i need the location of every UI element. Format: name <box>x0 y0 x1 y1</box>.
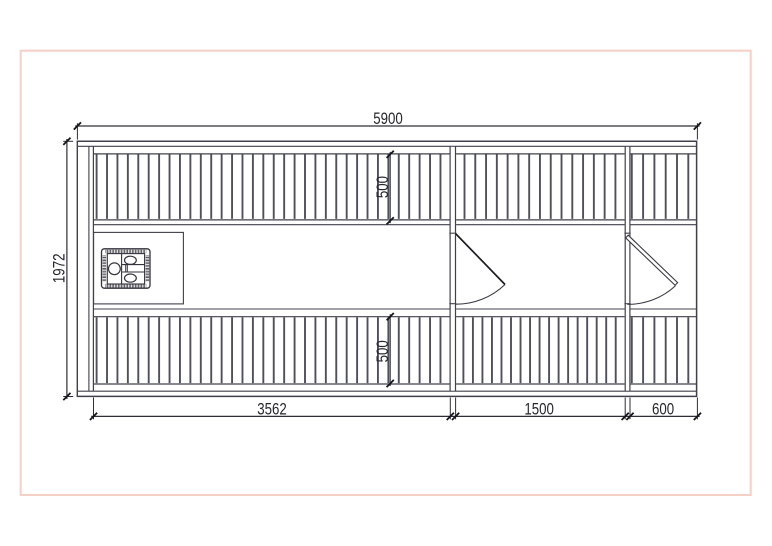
svg-text:500: 500 <box>375 176 392 198</box>
svg-text:3562: 3562 <box>257 401 287 418</box>
svg-text:600: 600 <box>652 401 674 418</box>
svg-text:1500: 1500 <box>524 401 554 418</box>
svg-text:5900: 5900 <box>373 111 403 128</box>
svg-text:500: 500 <box>375 340 392 362</box>
svg-text:1972: 1972 <box>51 254 68 284</box>
